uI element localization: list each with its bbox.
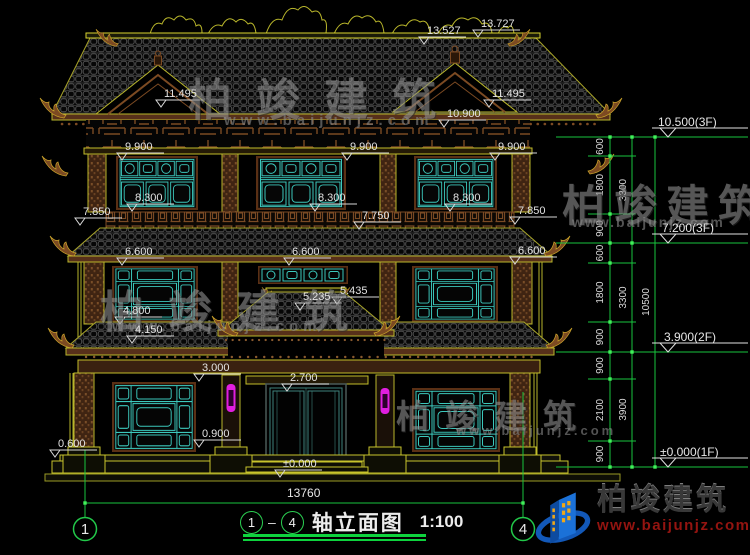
elevation-label: 9.900 bbox=[125, 141, 153, 153]
lattice-window bbox=[113, 383, 195, 451]
pilaster bbox=[376, 375, 394, 458]
elevation-label: 5.235 bbox=[303, 291, 331, 303]
elevation-label: 0.600 bbox=[58, 438, 86, 450]
svg-text:10500: 10500 bbox=[641, 288, 652, 316]
svg-text:3900: 3900 bbox=[618, 398, 629, 421]
transom-windows bbox=[259, 267, 347, 283]
svg-text:1800: 1800 bbox=[595, 173, 606, 196]
level-label: 10.500(3F) bbox=[658, 115, 717, 129]
column bbox=[88, 154, 106, 212]
lattice-window bbox=[413, 267, 497, 321]
floor-3 bbox=[88, 154, 530, 228]
svg-text:900: 900 bbox=[595, 357, 606, 374]
cad-elevation-drawing: 600 1800 900 600 1800 900 900 2100 900 3… bbox=[0, 0, 750, 555]
entrance-door bbox=[266, 384, 346, 462]
elevation-label: 11.495 bbox=[164, 88, 197, 100]
brand-logo-icon bbox=[535, 484, 591, 550]
column bbox=[84, 262, 104, 324]
elevation-label: 6.600 bbox=[125, 246, 153, 258]
elevation-label: 13.527 bbox=[427, 25, 461, 37]
level-label: ±0.000(1F) bbox=[660, 445, 719, 459]
vertical-dim-texts: 600 1800 900 600 1800 900 900 2100 900 3… bbox=[595, 138, 652, 463]
title-dash: – bbox=[268, 514, 276, 530]
title-scale: 1:100 bbox=[420, 512, 463, 532]
elevation-label: 8.300 bbox=[453, 192, 481, 204]
title-underline bbox=[243, 534, 426, 537]
elevation-label: 4.150 bbox=[135, 324, 163, 336]
elevation-canvas: 600 1800 900 600 1800 900 900 2100 900 3… bbox=[0, 0, 750, 555]
svg-text:900: 900 bbox=[595, 445, 606, 462]
svg-text:600: 600 bbox=[595, 138, 606, 155]
lantern-icon bbox=[383, 394, 388, 408]
column bbox=[380, 262, 396, 324]
elevation-label: 8.300 bbox=[318, 192, 346, 204]
column bbox=[512, 154, 530, 212]
column bbox=[222, 154, 238, 212]
elevation-label: 7.750 bbox=[362, 210, 390, 222]
elevation-label: ±0.000 bbox=[283, 458, 317, 470]
svg-text:3300: 3300 bbox=[618, 178, 629, 201]
brand-logo: 柏竣建筑 www.baijunjz.com bbox=[535, 484, 750, 550]
title-text: 轴立面图 bbox=[312, 507, 404, 537]
elevation-label: 9.900 bbox=[498, 141, 526, 153]
elevation-label: 8.300 bbox=[135, 192, 163, 204]
elevation-label: 7.850 bbox=[518, 205, 546, 217]
column bbox=[510, 373, 530, 458]
axis-number-right: 4 bbox=[519, 521, 527, 538]
title-underline bbox=[243, 539, 426, 541]
brand-logo-url: www.baijunjz.com bbox=[597, 518, 750, 534]
elevation-label: 7.850 bbox=[83, 206, 111, 218]
elevation-label: 9.900 bbox=[350, 141, 378, 153]
column bbox=[380, 154, 396, 212]
elevation-label: 10.900 bbox=[447, 108, 481, 120]
lantern-icon bbox=[229, 390, 234, 406]
elevation-label: 11.495 bbox=[492, 88, 525, 100]
elevation-label: 0.900 bbox=[202, 428, 230, 440]
svg-text:3300: 3300 bbox=[618, 286, 629, 309]
total-width-dim: 13760 bbox=[287, 486, 320, 500]
eave-hook-icon bbox=[48, 328, 74, 348]
level-label: 7.200(3F) bbox=[662, 221, 714, 235]
svg-text:1800: 1800 bbox=[595, 281, 606, 304]
eave-hook-icon bbox=[544, 236, 570, 256]
eave-hook-icon bbox=[50, 236, 76, 256]
elevation-label: 6.600 bbox=[518, 245, 546, 257]
balcony-railing bbox=[106, 212, 514, 228]
ground-line bbox=[45, 474, 620, 481]
column bbox=[222, 262, 238, 324]
eave-hook-icon bbox=[546, 328, 572, 348]
axis-number-left: 1 bbox=[81, 521, 89, 538]
title-axis-bubble-to: 4 bbox=[281, 511, 304, 534]
corner-ridge-hook-icon bbox=[42, 156, 68, 176]
elevation-label: 6.600 bbox=[292, 246, 320, 258]
svg-text:600: 600 bbox=[595, 244, 606, 261]
drawing-title: 1 – 4 轴立面图 1:100 bbox=[240, 507, 463, 537]
svg-text:2100: 2100 bbox=[595, 398, 606, 421]
title-axis-bubble-from: 1 bbox=[240, 511, 263, 534]
lattice-window bbox=[413, 389, 499, 451]
elevation-label: 3.000 bbox=[202, 362, 230, 374]
svg-text:900: 900 bbox=[595, 328, 606, 345]
brand-logo-text: 柏竣建筑 bbox=[597, 484, 750, 518]
level-label: 3.900(2F) bbox=[664, 330, 716, 344]
svg-text:900: 900 bbox=[595, 220, 606, 237]
elevation-label: 5.435 bbox=[340, 285, 368, 297]
elevation-label: 13.727 bbox=[481, 18, 515, 30]
elevation-label: 2.700 bbox=[290, 372, 318, 384]
elevation-label: 4.800 bbox=[123, 305, 151, 317]
column bbox=[512, 262, 532, 324]
